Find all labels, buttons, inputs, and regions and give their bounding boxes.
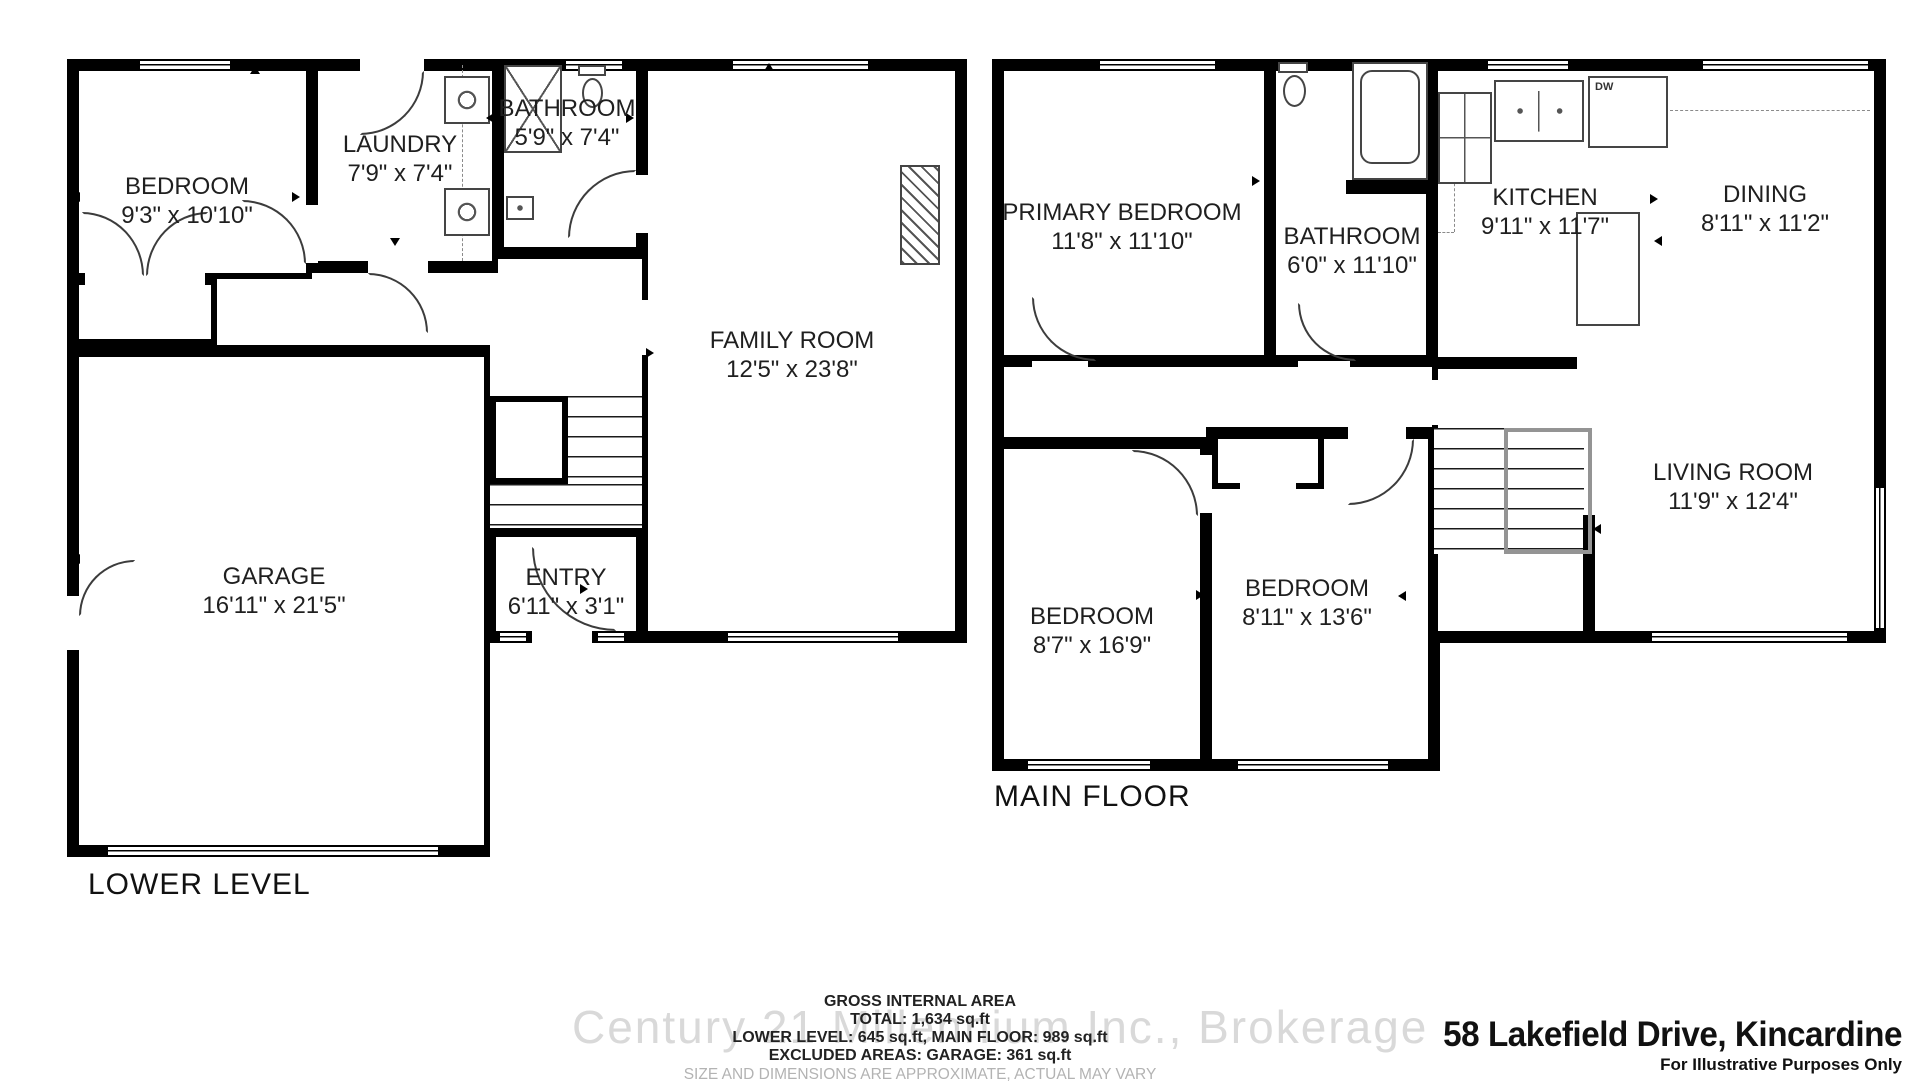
washer-icon xyxy=(444,188,490,236)
direction-marker-icon xyxy=(72,554,80,564)
room-label-bedroom-1: BEDROOM 8'7" x 16'9" xyxy=(1030,602,1154,660)
room-name: ENTRY xyxy=(508,563,625,592)
room-name: BEDROOM xyxy=(1242,574,1372,603)
doorway-bedroom-1 xyxy=(1200,455,1212,513)
garage-door-opening xyxy=(108,845,438,857)
room-name: FAMILY ROOM xyxy=(710,326,874,355)
doorway-bathroom-main xyxy=(1298,361,1350,373)
room-name: BATHROOM xyxy=(1284,222,1421,251)
bathtub-inner-icon xyxy=(1360,70,1420,164)
window-primary-bedroom xyxy=(1100,59,1215,71)
room-name: LAUNDRY xyxy=(343,130,457,159)
room-label-bathroom-lower: BATHROOM 5'9" x 7'4" xyxy=(499,94,636,152)
room-dims: 8'11" x 11'2" xyxy=(1701,209,1829,238)
doorway-laundry-bottom xyxy=(368,261,428,273)
area-summary: GROSS INTERNAL AREA TOTAL: 1,634 sq.ft L… xyxy=(684,993,1157,1084)
room-dims: 8'7" x 16'9" xyxy=(1030,631,1154,660)
doorway-bathroom-lower xyxy=(636,175,648,233)
wall-under-tub xyxy=(1346,180,1432,194)
window-living-bottom xyxy=(1652,631,1847,643)
window-kitchen xyxy=(1488,59,1568,71)
property-address-block: 58 Lakefield Drive, Kincardine For Illus… xyxy=(1419,1016,1902,1075)
window-bedroom-1 xyxy=(1028,759,1150,771)
room-label-bedroom-lower: BEDROOM 9'3" x 10'10" xyxy=(121,172,253,230)
room-closet-main xyxy=(1212,427,1324,489)
room-dims: 6'11" x 3'1" xyxy=(508,592,625,621)
room-label-dining: DINING 8'11" x 11'2" xyxy=(1701,180,1829,238)
room-label-kitchen: KITCHEN 9'11" x 11'7" xyxy=(1481,183,1609,241)
stairs-lower-lower-flight xyxy=(490,484,642,528)
opening-hall-living xyxy=(1432,380,1444,425)
room-dims: 9'3" x 10'10" xyxy=(121,201,253,230)
stairs-main-rail xyxy=(1504,428,1592,554)
room-label-bedroom-2: BEDROOM 8'11" x 13'6" xyxy=(1242,574,1372,632)
window-entry-sidelight-right xyxy=(598,631,624,643)
direction-marker-icon xyxy=(1593,524,1601,534)
window-bedroom-lower xyxy=(140,59,230,71)
direction-marker-icon xyxy=(1398,591,1406,601)
floorplan-canvas: BEDROOM 9'3" x 10'10" LAUNDRY 7'9" x 7'4… xyxy=(0,0,1920,1088)
size-disclaimer: SIZE AND DIMENSIONS ARE APPROXIMATE, ACT… xyxy=(684,1066,1157,1084)
room-name: BEDROOM xyxy=(1030,602,1154,631)
stove-icon xyxy=(1438,92,1492,184)
direction-marker-icon xyxy=(1196,590,1204,600)
fireplace-icon xyxy=(900,165,940,265)
main-floor-label: MAIN FLOOR xyxy=(994,780,1191,814)
window-entry-sidelight-left xyxy=(500,631,526,643)
room-name: LIVING ROOM xyxy=(1653,458,1813,487)
room-dims: 9'11" x 11'7" xyxy=(1481,212,1609,241)
room-dims: 5'9" x 7'4" xyxy=(499,123,636,152)
opening-hall-family xyxy=(636,300,648,355)
direction-marker-icon xyxy=(1654,236,1662,246)
room-name: KITCHEN xyxy=(1481,183,1609,212)
doorway-garage-side xyxy=(67,596,79,650)
lower-level-label: LOWER LEVEL xyxy=(88,868,311,902)
direction-marker-icon xyxy=(1650,194,1658,204)
direction-marker-icon xyxy=(1060,63,1070,71)
direction-marker-icon xyxy=(292,192,300,202)
room-name: BATHROOM xyxy=(499,94,636,123)
room-dims: 11'9" x 12'4" xyxy=(1653,487,1813,516)
level-areas: LOWER LEVEL: 645 sq.ft, MAIN FLOOR: 989 … xyxy=(684,1029,1157,1047)
total-area: TOTAL: 1,634 sq.ft xyxy=(684,1011,1157,1029)
room-label-living-room: LIVING ROOM 11'9" x 12'4" xyxy=(1653,458,1813,516)
sink-icon xyxy=(506,196,534,220)
direction-marker-icon xyxy=(646,348,654,358)
counter-dashed-line xyxy=(1670,110,1870,111)
stairs-lower-upper-flight xyxy=(568,396,642,484)
room-label-primary-bedroom: PRIMARY BEDROOM 11'8" x 11'10" xyxy=(1002,198,1241,256)
doorway-bedroom-2 xyxy=(1348,427,1406,439)
property-address: 58 Lakefield Drive, Kincardine xyxy=(1443,1016,1902,1054)
room-label-family-room: FAMILY ROOM 12'5" x 23'8" xyxy=(710,326,874,384)
window-living-right xyxy=(1874,488,1886,628)
laundry-tub-icon xyxy=(444,76,490,124)
doorway-laundry-top xyxy=(360,59,424,71)
room-label-entry: ENTRY 6'11" x 3'1" xyxy=(508,563,625,621)
room-dims: 6'0" x 11'10" xyxy=(1284,251,1421,280)
room-dims: 12'5" x 23'8" xyxy=(710,355,874,384)
window-bedroom-2 xyxy=(1238,759,1388,771)
room-name: DINING xyxy=(1701,180,1829,209)
room-label-laundry: LAUNDRY 7'9" x 7'4" xyxy=(343,130,457,188)
toilet-bowl-icon xyxy=(1283,75,1306,107)
wall-kitchen-living xyxy=(1432,357,1577,369)
toilet-tank-icon xyxy=(578,65,606,76)
closet-opening-main xyxy=(1240,483,1296,495)
gross-area-title: GROSS INTERNAL AREA xyxy=(684,993,1157,1011)
dishwasher-label: DW xyxy=(1590,78,1666,93)
dishwasher-icon: DW xyxy=(1588,76,1668,148)
room-label-garage: GARAGE 16'11" x 21'5" xyxy=(202,562,345,620)
wall-right-exterior-lower xyxy=(1428,643,1440,771)
window-dining xyxy=(1703,59,1868,71)
stairs-lower-landing xyxy=(490,396,568,484)
room-dims: 7'9" x 7'4" xyxy=(343,159,457,188)
illustrative-note: For Illustrative Purposes Only xyxy=(1419,1055,1902,1075)
doorway-bedroom-lower xyxy=(306,205,318,263)
direction-marker-icon xyxy=(250,66,260,74)
room-name: PRIMARY BEDROOM xyxy=(1002,198,1241,227)
window-family-bottom xyxy=(728,631,898,643)
front-door-opening xyxy=(532,631,592,643)
doorway-primary-bedroom xyxy=(1032,361,1088,373)
direction-marker-icon xyxy=(72,192,80,202)
direction-marker-icon xyxy=(486,113,494,123)
room-dims: 8'11" x 13'6" xyxy=(1242,603,1372,632)
direction-marker-icon xyxy=(390,238,400,246)
wall-left-exterior xyxy=(992,367,1004,437)
excluded-areas: EXCLUDED AREAS: GARAGE: 361 sq.ft xyxy=(684,1047,1157,1065)
room-closet-lower xyxy=(67,279,217,345)
room-dims: 16'11" x 21'5" xyxy=(202,591,345,620)
door-swing-icon xyxy=(368,273,428,333)
room-label-bathroom-main: BATHROOM 6'0" x 11'10" xyxy=(1284,222,1421,280)
toilet-tank-icon xyxy=(1278,62,1308,73)
direction-marker-icon xyxy=(1252,176,1260,186)
counter-dashed-line xyxy=(1438,232,1454,233)
room-dims: 11'8" x 11'10" xyxy=(1002,227,1241,256)
window-family-top xyxy=(733,59,868,71)
kitchen-sink-icon xyxy=(1494,80,1584,142)
room-name: BEDROOM xyxy=(121,172,253,201)
room-name: GARAGE xyxy=(202,562,345,591)
direction-marker-icon xyxy=(764,63,774,71)
